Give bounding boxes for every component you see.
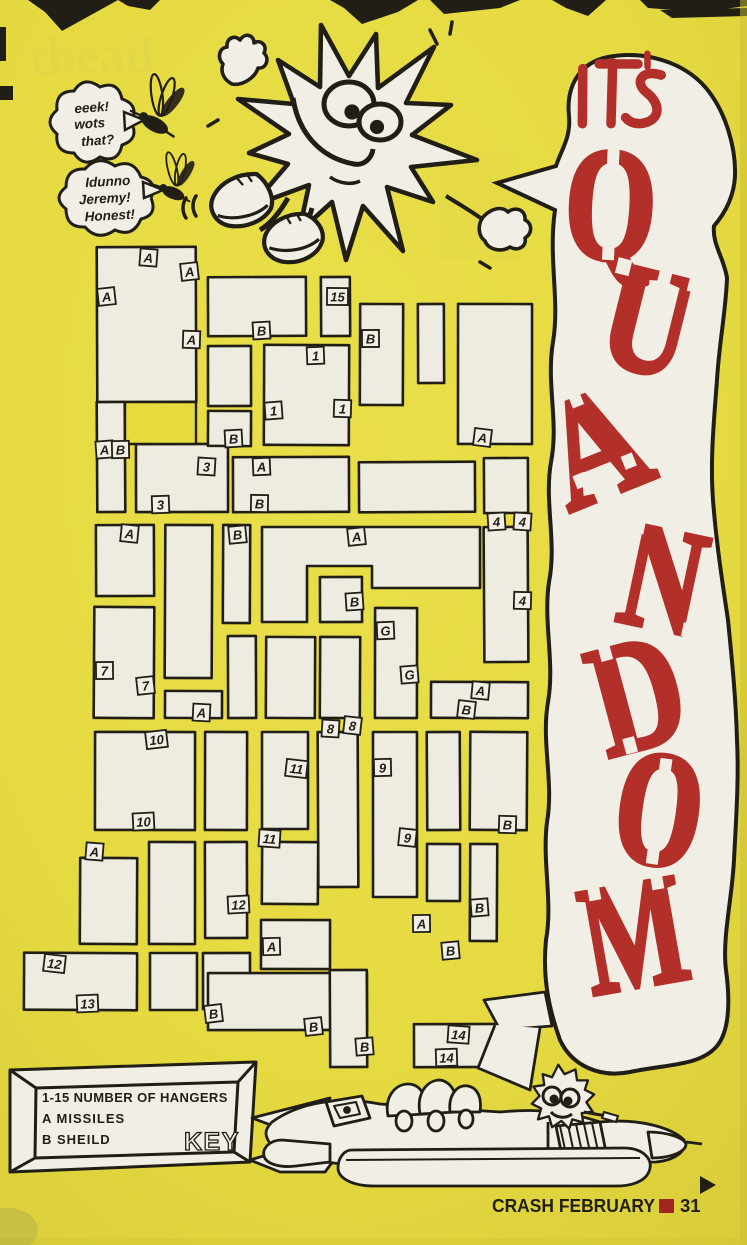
svg-text:1: 1 [339,401,347,416]
svg-text:Jeremy!: Jeremy! [79,190,132,208]
svg-text:A: A [195,705,206,720]
svg-text:31: 31 [680,1195,701,1216]
svg-text:A: A [350,529,362,545]
svg-text:G: G [380,623,391,638]
svg-text:15: 15 [330,289,345,304]
svg-text:12: 12 [46,956,63,973]
svg-text:1-15 NUMBER OF HANGERS: 1-15 NUMBER OF HANGERS [42,1090,228,1105]
svg-text:that?: that? [81,132,115,149]
svg-text:B: B [349,594,359,610]
svg-text:CRASH FEBRUARY: CRASH FEBRUARY [492,1195,656,1216]
svg-text:A: A [186,332,197,347]
svg-text:wots: wots [74,115,106,132]
svg-text:A: A [266,939,277,954]
svg-text:B: B [256,323,266,338]
svg-text:A: A [123,526,135,542]
svg-text:A: A [183,264,195,280]
svg-text:11: 11 [262,831,276,847]
svg-text:B SHEILD: B SHEILD [42,1132,111,1147]
svg-text:14: 14 [451,1027,467,1043]
svg-text:Honest!: Honest! [84,207,135,225]
svg-text:B: B [474,900,484,916]
svg-text:13: 13 [80,996,96,1012]
svg-text:A: A [476,430,488,446]
svg-text:14: 14 [439,1050,455,1065]
svg-text:B: B [232,527,243,543]
svg-text:A: A [142,250,154,266]
svg-text:A: A [256,459,267,474]
svg-text:A: A [98,442,109,458]
svg-text:eeek!: eeek! [74,99,110,116]
svg-text:B: B [255,496,265,511]
svg-text:A: A [100,289,112,305]
svg-text:B: B [308,1019,319,1035]
svg-text:A: A [474,683,486,699]
svg-text:B: B [366,331,375,346]
svg-text:B: B [359,1039,370,1055]
svg-text:4: 4 [518,593,527,608]
svg-text:A: A [416,916,427,931]
svg-text:B: B [503,817,513,832]
svg-text:B: B [445,943,456,959]
svg-text:B: B [208,1006,219,1022]
svg-text:A: A [88,844,100,860]
svg-text:KEY: KEY [184,1128,240,1156]
svg-text:3: 3 [157,497,166,512]
svg-text:Idunno: Idunno [85,173,131,190]
svg-text:10: 10 [148,732,165,749]
svg-text:1: 1 [269,403,277,418]
svg-text:9: 9 [379,760,387,775]
svg-text:G: G [404,667,415,683]
svg-text:1: 1 [312,348,320,363]
svg-text:7: 7 [101,663,109,678]
svg-text:B: B [461,702,472,718]
svg-text:A MISSILES: A MISSILES [42,1111,125,1126]
svg-text:B: B [228,431,238,446]
svg-text:B: B [116,442,126,457]
svg-text:11: 11 [289,761,304,777]
svg-text:12: 12 [231,897,247,913]
svg-text:thead: thead [28,26,154,87]
svg-text:10: 10 [136,814,152,830]
